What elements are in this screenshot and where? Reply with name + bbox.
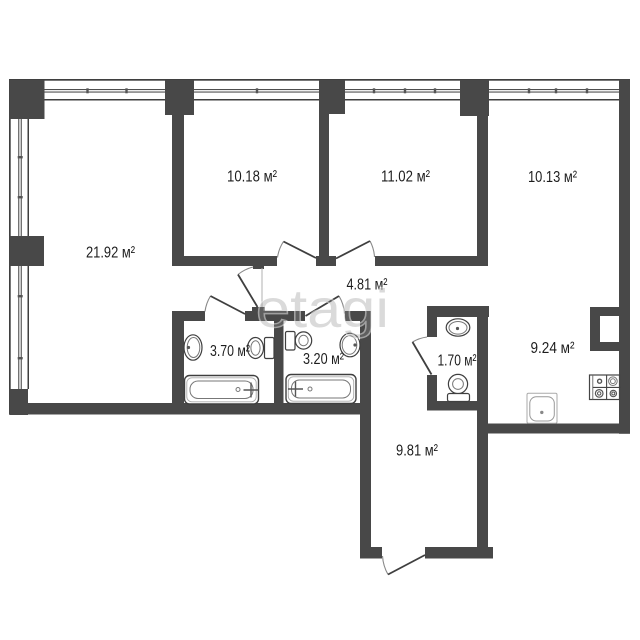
svg-text:3.70 м²: 3.70 м²: [210, 343, 251, 360]
svg-text:10.18 м²: 10.18 м²: [227, 169, 278, 186]
svg-text:10.13 м²: 10.13 м²: [528, 169, 578, 186]
svg-text:21.92 м²: 21.92 м²: [86, 245, 136, 262]
svg-text:9.81 м²: 9.81 м²: [396, 443, 439, 460]
svg-text:etagi: etagi: [256, 279, 389, 339]
svg-text:11.02 м²: 11.02 м²: [381, 169, 431, 186]
svg-text:3.20 м²: 3.20 м²: [303, 351, 345, 368]
svg-text:1.70 м²: 1.70 м²: [438, 353, 477, 370]
svg-text:9.24 м²: 9.24 м²: [531, 340, 576, 357]
